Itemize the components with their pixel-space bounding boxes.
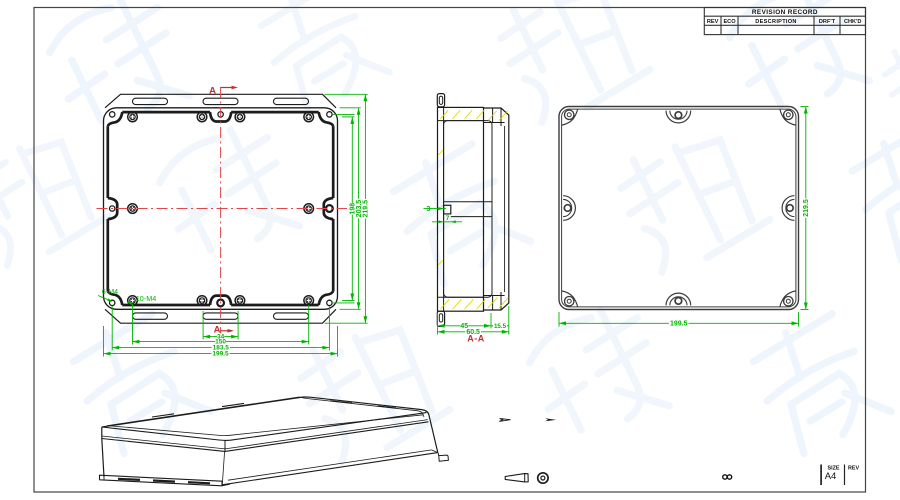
svg-text:DESCRIPTION: DESCRIPTION bbox=[755, 19, 797, 25]
svg-text:6-M4: 6-M4 bbox=[102, 287, 118, 296]
svg-text:219.5: 219.5 bbox=[803, 199, 810, 217]
svg-text:15.5: 15.5 bbox=[494, 323, 507, 330]
svg-text:60.5: 60.5 bbox=[466, 329, 480, 336]
svg-text:10-M4: 10-M4 bbox=[136, 294, 156, 303]
svg-text:REV: REV bbox=[707, 19, 719, 25]
svg-text:199.5: 199.5 bbox=[670, 321, 688, 328]
svg-text:199.5: 199.5 bbox=[212, 351, 229, 358]
svg-text:219.5: 219.5 bbox=[363, 200, 370, 218]
svg-text:REVISION RECORD: REVISION RECORD bbox=[752, 9, 818, 16]
svg-text:7: 7 bbox=[446, 215, 450, 222]
svg-text:DRF'T: DRF'T bbox=[819, 19, 836, 25]
svg-text:A4: A4 bbox=[825, 471, 837, 482]
svg-text:A: A bbox=[209, 86, 216, 97]
svg-text:ECO: ECO bbox=[723, 19, 736, 25]
svg-text:REV: REV bbox=[848, 465, 859, 471]
svg-text:3: 3 bbox=[427, 206, 431, 213]
svg-text:CHK'D: CHK'D bbox=[844, 19, 862, 25]
